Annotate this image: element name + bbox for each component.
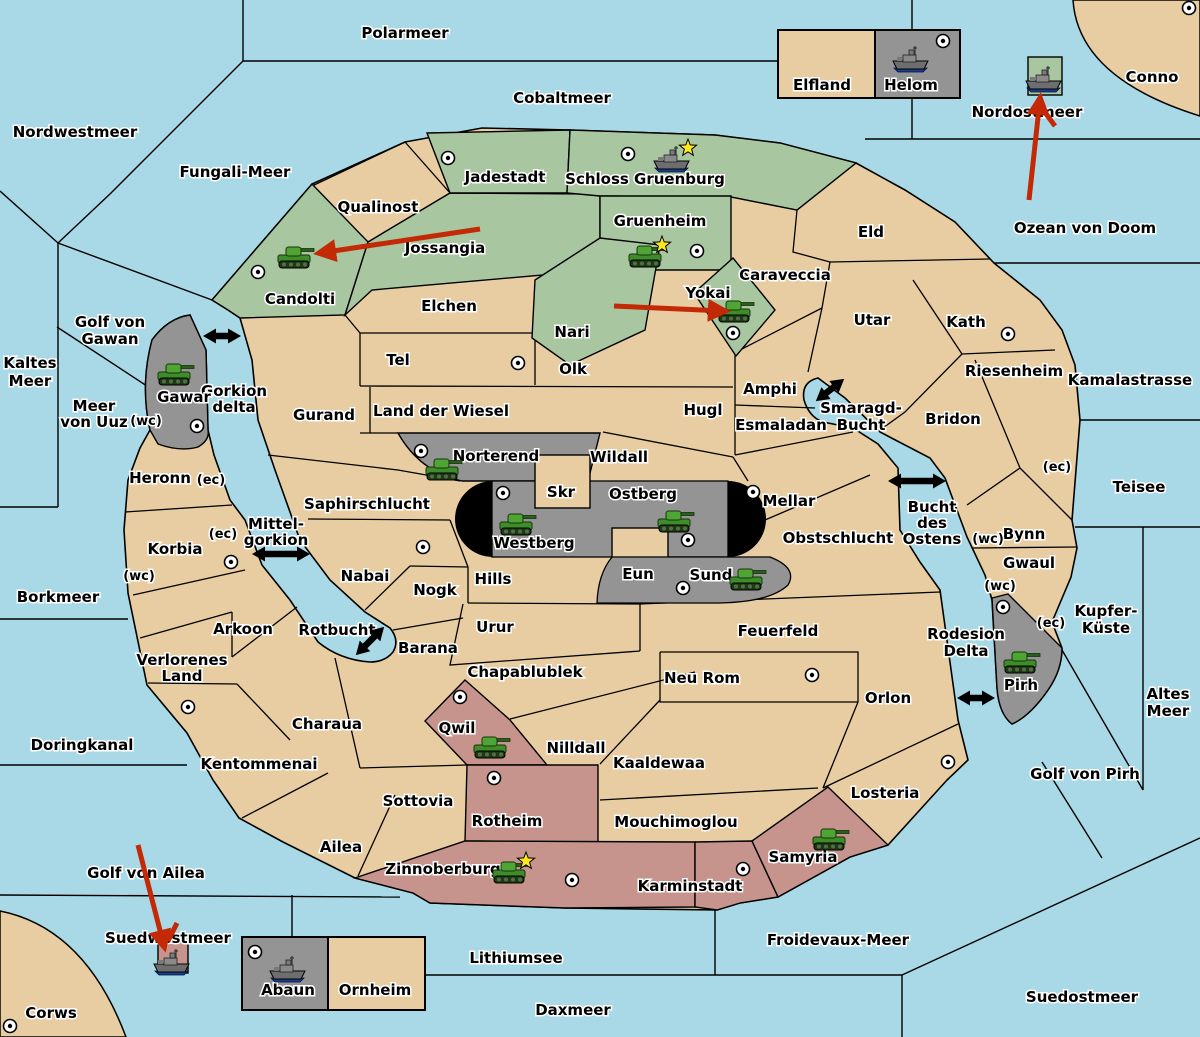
label-sottovia: Sottovia (383, 792, 454, 810)
label-bucht-des-ostens: Ostens (903, 530, 962, 548)
label-qualinost: Qualinost (338, 198, 419, 216)
supply-center-abaun (249, 946, 262, 959)
label-yokai: Yokai (684, 284, 730, 302)
label-coast-ec-riesenheim: (ec) (1043, 460, 1071, 475)
label-wildall: Wildall (590, 448, 648, 466)
label-skr: Skr (547, 483, 576, 501)
label-golf-von-gawan: Gawan (81, 330, 138, 348)
label-elfland: Elfland (793, 76, 851, 94)
label-candolti: Candolti (265, 290, 335, 308)
label-nabai: Nabai (341, 567, 390, 585)
supply-center-rotheim (488, 772, 501, 785)
label-rotbucht: Rotbucht (298, 621, 375, 639)
label-doringkanal: Doringkanal (31, 736, 134, 754)
label-borkmeer: Borkmeer (17, 588, 100, 606)
label-bynn: Bynn (1003, 525, 1046, 543)
label-polarmeer: Polarmeer (361, 24, 449, 42)
label-samyria: Samyria (769, 848, 838, 866)
label-jossangia: Jossangia (404, 239, 486, 257)
label-kath: Kath (946, 313, 986, 331)
label-caraveccia: Caraveccia (739, 266, 831, 284)
supply-center-pirh (997, 601, 1010, 614)
supply-center-candolti (252, 266, 265, 279)
label-schloss-gruenburg: Schloss Gruenburg (565, 170, 725, 188)
label-ozean-von-doom: Ozean von Doom (1014, 219, 1156, 237)
supply-center-sund (677, 582, 690, 595)
label-rodesion-delta: Delta (943, 642, 988, 660)
label-neu-rom: Neu Rom (664, 669, 740, 687)
label-kupfer-kueste: Kupfer- (1074, 602, 1137, 620)
supply-center-gawar (191, 420, 204, 433)
label-kamalastrasse: Kamalastrasse (1068, 371, 1192, 389)
label-heronn: Heronn (129, 469, 191, 487)
label-utar: Utar (854, 311, 891, 329)
label-olk: Olk (559, 360, 588, 378)
label-karminstadt: Karminstadt (638, 877, 743, 895)
label-ostberg: Ostberg (609, 485, 677, 503)
label-nordostmeer: Nordostmeer (972, 103, 1083, 121)
label-kaaldewaa: Kaaldewaa (613, 754, 705, 772)
label-riesenheim: Riesenheim (965, 362, 1063, 380)
game-map: PolarmeerCobaltmeerNordwestmeerFungali-M… (0, 0, 1200, 1037)
supply-center-qwil (454, 691, 467, 704)
label-smaragd-bucht: Bucht (837, 416, 886, 434)
label-orlon: Orlon (865, 689, 911, 707)
label-gurand: Gurand (293, 406, 355, 424)
label-obstschlucht: Obstschlucht (783, 529, 894, 547)
supply-center-schloss-gruenburg (622, 148, 635, 161)
supply-center-mellar (747, 486, 760, 499)
supply-center-neu-rom (806, 669, 819, 682)
supply-center-yokai (727, 327, 740, 340)
label-nordwestmeer: Nordwestmeer (13, 123, 138, 141)
label-altes-meer: Meer (1147, 702, 1190, 720)
label-ailea: Ailea (320, 838, 362, 856)
supply-center-jadestadt (442, 152, 455, 165)
label-verlorenes-land: Land (161, 667, 202, 685)
label-mouchimoglou: Mouchimoglou (614, 813, 737, 831)
supply-center-zinnoberburg (566, 874, 579, 887)
label-kaltes-meer: Meer (9, 372, 52, 390)
label-coast-ec-korbia: (ec) (209, 527, 237, 542)
supply-center-tel (512, 357, 525, 370)
label-nari: Nari (554, 323, 589, 341)
label-nilldall: Nilldall (546, 739, 605, 757)
supply-center-gruenheim (691, 245, 704, 258)
label-eun: Eun (622, 565, 654, 583)
label-conno: Conno (1126, 68, 1179, 86)
label-kupfer-kueste: Küste (1082, 619, 1130, 637)
label-altes-meer: Altes (1146, 685, 1189, 703)
supply-center-conno (1183, 2, 1196, 15)
supply-center-losteria (942, 756, 955, 769)
label-rotheim: Rotheim (472, 812, 543, 830)
label-losteria: Losteria (851, 784, 920, 802)
label-rodesion-delta: Rodesion (927, 625, 1005, 643)
label-meer-von-uuz: von Uuz (60, 413, 128, 431)
label-coast-wc-gwaul: (wc) (984, 579, 1016, 594)
label-urur: Urur (476, 618, 514, 636)
supply-center-kath (1002, 328, 1015, 341)
label-zinnoberburg: Zinnoberburg (385, 860, 501, 878)
label-gruenheim: Gruenheim (614, 212, 707, 230)
label-nogk: Nogk (413, 581, 458, 599)
label-gawar: Gawar (157, 388, 211, 406)
label-smaragd-bucht: Smaragd- (820, 399, 902, 417)
label-froidevaux-meer: Froidevaux-Meer (767, 931, 910, 949)
supply-center-westberg (497, 487, 510, 500)
supply-center-kentommenai (182, 701, 195, 714)
supply-center-helom (937, 35, 950, 48)
label-mittel-gorkion: gorkion (244, 531, 309, 549)
label-lithiumsee: Lithiumsee (469, 949, 562, 967)
label-coast-wc-korbia: (wc) (123, 569, 155, 584)
map-svg: PolarmeerCobaltmeerNordwestmeerFungali-M… (0, 0, 1200, 1037)
label-elchen: Elchen (421, 297, 477, 315)
label-golf-von-pirh: Golf von Pirh (1030, 765, 1140, 783)
label-coast-wc-heronn: (wc) (130, 414, 162, 429)
supply-center-norterend (415, 445, 428, 458)
supply-center-karminstadt (737, 863, 750, 876)
label-qwil: Qwil (439, 719, 476, 737)
label-suedostmeer: Suedostmeer (1026, 988, 1139, 1006)
label-korbia: Korbia (147, 540, 202, 558)
label-helom: Helom (884, 76, 938, 94)
label-kaltes-meer: Kaltes (3, 354, 56, 372)
supply-center-ostberg (682, 534, 695, 547)
label-chapablublek: Chapablublek (467, 663, 583, 681)
label-amphi: Amphi (743, 380, 797, 398)
label-barana: Barana (398, 639, 458, 657)
label-daxmeer: Daxmeer (535, 1001, 611, 1019)
label-westberg: Westberg (493, 534, 574, 552)
label-norterend: Norterend (453, 447, 540, 465)
label-corws: Corws (25, 1004, 77, 1022)
supply-center-korbia (225, 556, 238, 569)
region-rotheim[interactable] (465, 765, 598, 842)
label-arkoon: Arkoon (213, 620, 273, 638)
label-eld: Eld (858, 223, 884, 241)
label-gorkion-delta: delta (212, 398, 255, 416)
label-tel: Tel (386, 351, 410, 369)
label-hills: Hills (475, 570, 512, 588)
label-pirh: Pirh (1004, 676, 1038, 694)
supply-center-nabai (417, 541, 430, 554)
label-kentommenai: Kentommenai (200, 755, 317, 773)
label-saphirschlucht: Saphirschlucht (304, 495, 430, 513)
label-ornheim: Ornheim (339, 981, 411, 999)
label-charaua: Charaua (292, 715, 362, 733)
label-bridon: Bridon (925, 410, 981, 428)
label-land-der-wiesel: Land der Wiesel (373, 402, 509, 420)
label-mellar: Mellar (763, 492, 817, 510)
supply-center-corws (4, 1020, 17, 1033)
label-jadestadt: Jadestadt (464, 168, 546, 186)
label-sund: Sund (690, 566, 733, 584)
label-cobaltmeer: Cobaltmeer (513, 89, 611, 107)
label-coast-wc-bynn: (wc) (972, 532, 1004, 547)
label-abaun: Abaun (261, 981, 315, 999)
label-coast-ec-heronn: (ec) (197, 473, 225, 488)
label-golf-von-gawan: Golf von (75, 313, 145, 331)
label-teisee: Teisee (1113, 478, 1166, 496)
label-coast-ec-gwaul: (ec) (1037, 616, 1065, 631)
label-esmaladan: Esmaladan (735, 416, 827, 434)
label-hugl: Hugl (683, 401, 722, 419)
label-gwaul: Gwaul (1003, 554, 1055, 572)
label-fungali-meer: Fungali-Meer (180, 163, 291, 181)
label-feuerfeld: Feuerfeld (738, 622, 819, 640)
